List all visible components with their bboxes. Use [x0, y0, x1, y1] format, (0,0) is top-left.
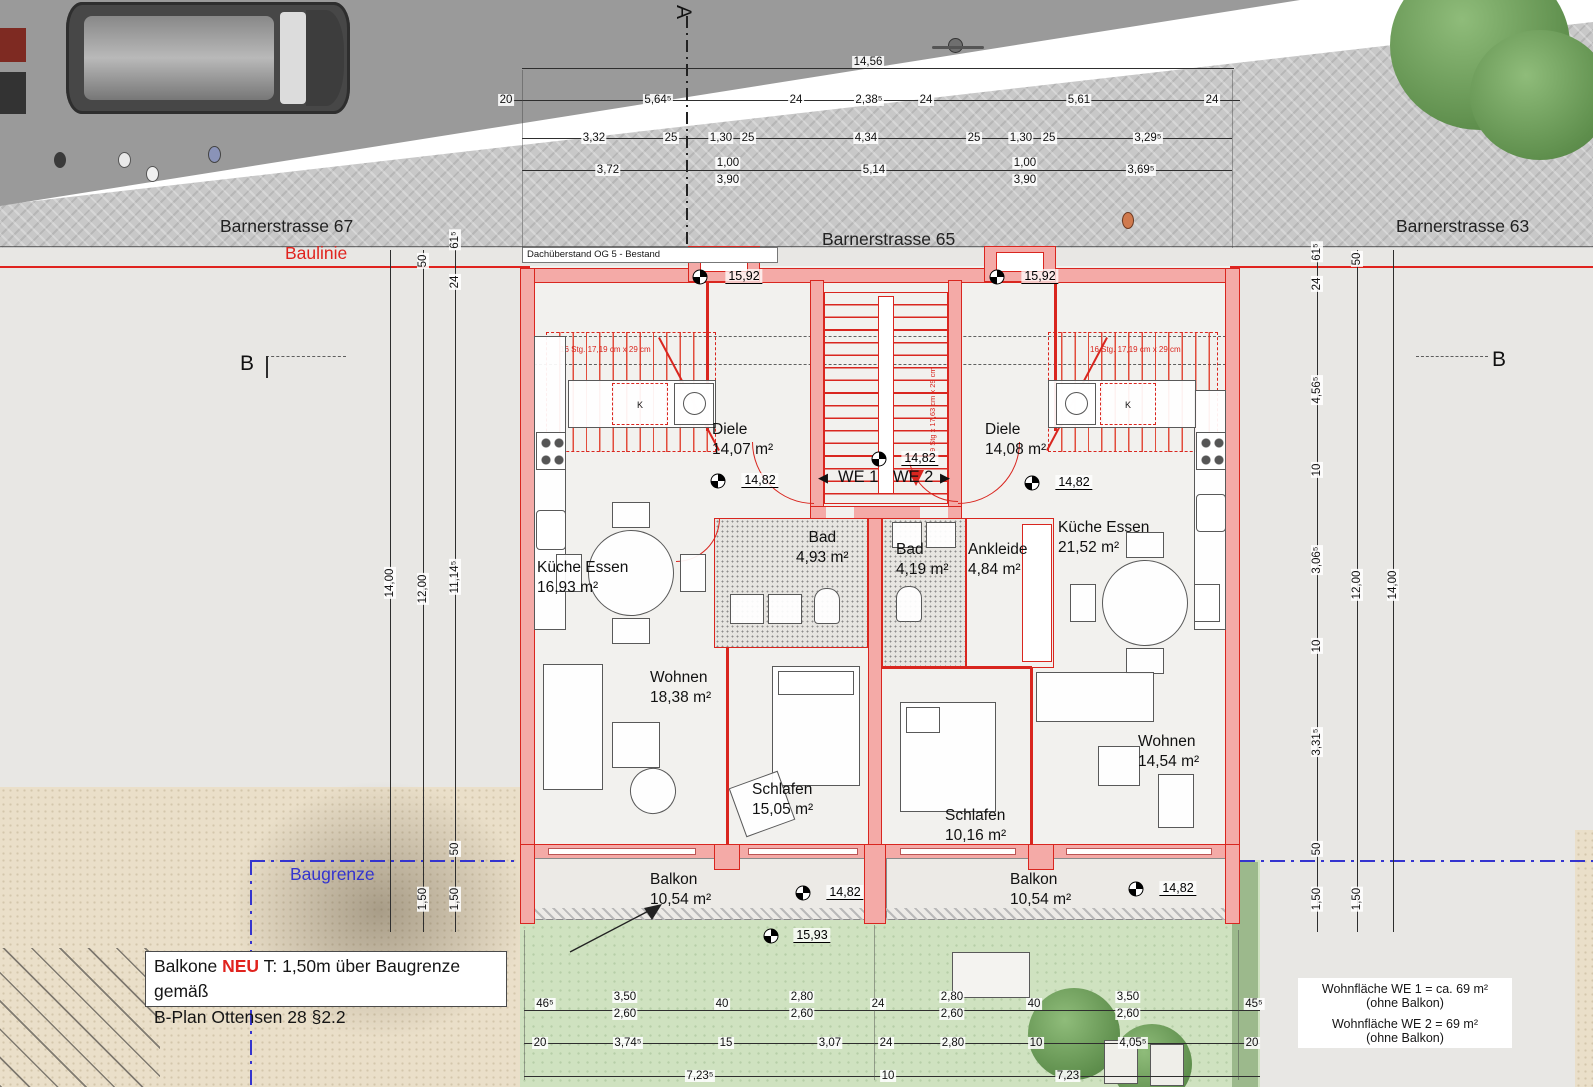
street-label-right: Barnerstrasse 63 [1396, 216, 1529, 237]
level-marker-diele1 [711, 474, 726, 489]
partition-we1-wohnen-schlafen [726, 648, 729, 844]
dim-label: 46⁵ [535, 998, 556, 1010]
legend-we2-sub: (ohne Balkon) [1298, 1031, 1512, 1045]
dim-label: 4,56⁵ [1311, 375, 1323, 405]
sink-left [536, 510, 566, 550]
roof-note-text: Dachüberstand OG 5 - Bestand [527, 249, 660, 260]
building-roof-fragment-2 [0, 72, 26, 114]
vanity-we1-a [730, 594, 764, 624]
note-line-1: Balkone NEU T: 1,50m über Baugrenze gemä… [154, 954, 498, 1005]
door-gap-we1 [826, 507, 854, 518]
section-b-left-label: B [240, 352, 254, 376]
sofa-we2 [1036, 672, 1154, 722]
dim-label: 7,23 [1055, 1070, 1080, 1082]
note-highlight: NEU [222, 956, 259, 976]
we1-label: WE 1 [838, 468, 878, 487]
bed-we1-pillows [778, 671, 854, 695]
dim-label: 3,32 [581, 132, 606, 144]
wall-top [520, 268, 1240, 283]
window-1 [548, 848, 696, 855]
dim-label: 24 [878, 1037, 894, 1049]
dim-label: 3,90 [1012, 174, 1037, 186]
dim-label: 1,50 [1351, 886, 1363, 911]
street-label-left: Barnerstrasse 67 [220, 216, 353, 237]
level-diele1: 14,82 [741, 473, 778, 488]
chair-we1-s [612, 618, 650, 644]
dim-label: 4,34 [853, 132, 878, 144]
dim-label: 24 [1311, 276, 1323, 292]
bicycle [932, 46, 984, 49]
street-boundary-line [0, 246, 1593, 247]
dim-label: 3,74⁵ [613, 1037, 643, 1049]
dim-label: 10 [880, 1070, 896, 1082]
stair-note-left: 16 Stg. 17,19 cm x 29 cm [560, 345, 651, 354]
stair-note-right: 16 Stg. 17,19 cm x 29 cm [1090, 345, 1181, 354]
street-label-center: Barnerstrasse 65 [822, 229, 955, 250]
ext-line [524, 930, 525, 1080]
chair-we1-n [612, 502, 650, 528]
dim-label: 20 [1244, 1037, 1260, 1049]
dim-label: 25 [966, 132, 982, 144]
window-4 [1066, 848, 1212, 855]
site-plan: Baulinie Barnerstrasse 67 Barnerstrasse … [0, 0, 1593, 1087]
chair-we1-e [680, 554, 706, 592]
car-hood [306, 10, 344, 106]
label-we2-schlafen: Schlafen10,16 m² [945, 806, 1006, 846]
wc-we1 [814, 588, 840, 624]
sofa-we1 [543, 664, 603, 790]
level-diele2: 14,82 [1055, 475, 1092, 490]
door-gap-we2 [920, 507, 948, 518]
balcony-end-right [1225, 844, 1240, 924]
label-we1-bad: Bad4,93 m² [796, 528, 849, 568]
dim-label: 24 [1204, 94, 1220, 106]
dim-label: 3,72 [595, 164, 620, 176]
chair-we2-s [1126, 648, 1164, 674]
level-marker-terrace [764, 929, 779, 944]
roof-note-box: Dachüberstand OG 5 - Bestand [522, 247, 778, 263]
legend-box: Wohnfläche WE 1 = ca. 69 m² (ohne Balkon… [1298, 978, 1512, 1048]
dim-label: 24 [788, 94, 804, 106]
sink-right [1196, 494, 1226, 532]
car-windshield [280, 12, 306, 104]
dim-label: 40 [1026, 998, 1042, 1010]
dim-label: 3,50 [1115, 991, 1140, 1003]
tv-bench-we2 [1158, 774, 1194, 828]
pillar-we2 [1028, 844, 1054, 870]
dim-label: 25 [1041, 132, 1057, 144]
washer-drum-right [1065, 392, 1088, 415]
level-balkon2: 14,82 [1159, 881, 1196, 896]
section-b-left-tick [266, 356, 268, 378]
baulinie-label: Baulinie [285, 243, 347, 264]
dim-label: 1,00 [1012, 157, 1037, 169]
ext-line [1232, 70, 1233, 248]
note-line-2: B-Plan Ottensen 28 §2.2 [154, 1005, 498, 1030]
bed-we2-pillows [906, 707, 940, 733]
dim-label: 3,69⁵ [1126, 164, 1156, 176]
label-we2-bad: Bad4,19 m² [896, 540, 949, 580]
dim-label: 24 [918, 94, 934, 106]
level-marker-roof-right [990, 270, 1005, 285]
dim-label: 14,00 [1387, 569, 1399, 601]
section-a-line [686, 16, 688, 252]
dim-label: 2,80 [940, 1037, 965, 1049]
dim-label: 12,00 [1351, 569, 1363, 601]
note-part1: Balkone [154, 956, 222, 976]
dim-label: 50 [449, 841, 461, 857]
dim-label: 61⁵ [449, 230, 461, 251]
dim-label: 1,50 [417, 886, 429, 911]
legend-we1: Wohnfläche WE 1 = ca. 69 m² [1298, 982, 1512, 996]
vanity-we1-b [768, 594, 802, 624]
dim-label: 24 [870, 998, 886, 1010]
wall-left [520, 268, 535, 858]
side-table-we2 [1098, 746, 1140, 786]
window-3 [900, 848, 1016, 855]
dim-label: 2,80 [789, 991, 814, 1003]
dim-label: 2,80 [939, 991, 964, 1003]
dim-label: 14,56 [852, 56, 884, 68]
partition-we2-schlafen-top [882, 666, 1032, 669]
label-we2-wohnen: Wohnen14,54 m² [1138, 732, 1199, 772]
window-2 [748, 848, 858, 855]
dim-label: 24 [449, 274, 461, 290]
dim-label: 45⁵ [1244, 998, 1265, 1010]
dim-label: 2,60 [789, 1008, 814, 1020]
chair-we2-w [1070, 584, 1096, 622]
dim-label: 50 [417, 253, 429, 269]
dim-label: 11,14⁵ [449, 559, 461, 595]
chair-we2-e [1194, 584, 1220, 622]
ext-line [1238, 930, 1239, 1080]
balcony-end-left [520, 844, 535, 924]
ext-line [522, 70, 523, 248]
balcony-divider [864, 844, 886, 924]
dim-label: 1,30 [708, 132, 733, 144]
partition-we2-schlafen-wohnen [1030, 668, 1033, 844]
dim-label: 4,05⁵ [1118, 1037, 1148, 1049]
stair-note-center: 9 Stg x 17,63 cm x 29 cm [928, 367, 937, 452]
dim-label: 5,14 [861, 164, 886, 176]
dim-label: 15 [718, 1037, 734, 1049]
label-we1-schlafen: Schlafen15,05 m² [752, 780, 813, 820]
level-marker-hall [872, 452, 887, 467]
dim-label: 10 [1028, 1037, 1044, 1049]
dim-label: 20 [498, 94, 514, 106]
dim-label: 1,30 [1008, 132, 1033, 144]
pedestrian-3 [146, 166, 159, 182]
dim-line-v [1317, 250, 1318, 932]
dim-label: 10 [1311, 462, 1323, 478]
coffee-table-we1 [612, 722, 660, 768]
baugrenze-label: Baugrenze [290, 864, 375, 885]
pillar-we1 [714, 844, 740, 870]
kitchen-k-box-right: K [1100, 383, 1156, 425]
hatch-area [0, 948, 160, 1087]
dim-label: 3,90 [715, 174, 740, 186]
stove-right [1196, 432, 1226, 470]
dim-label: 1,00 [715, 157, 740, 169]
dim-label: 2,60 [939, 1008, 964, 1020]
level-balkon1: 14,82 [826, 885, 863, 900]
section-b-right-label: B [1492, 348, 1506, 372]
pedestrian-1 [54, 152, 66, 168]
ground-right-edge [1575, 830, 1593, 1087]
we2-arrow: ▶ [940, 470, 950, 486]
kitchen-k-box-left: K [612, 383, 668, 425]
car-roof [84, 16, 274, 100]
dim-label: 25 [740, 132, 756, 144]
legend-we1-sub: (ohne Balkon) [1298, 996, 1512, 1010]
dim-label: 61⁵ [1311, 242, 1323, 263]
label-we1-diele: Diele14,07 m² [712, 420, 773, 460]
section-b-left-line [266, 356, 346, 357]
label-we1-wohnen: Wohnen18,38 m² [650, 668, 711, 708]
pedestrian-2 [118, 152, 131, 168]
wall-right [1225, 268, 1240, 858]
note-arrow [540, 890, 680, 960]
level-terrace: 15,93 [793, 928, 830, 943]
dim-label: 3,50 [612, 991, 637, 1003]
pedestrian-5 [1122, 212, 1134, 229]
wc-we2 [896, 586, 922, 622]
stove-left [536, 432, 566, 470]
level-hall: 14,82 [901, 451, 938, 466]
dim-label: 1,50 [449, 886, 461, 911]
garden-bench-2 [1150, 1044, 1184, 1086]
washer-drum-left [683, 392, 706, 415]
building-roof-fragment-1 [0, 28, 26, 62]
dim-line [522, 68, 1234, 69]
we1-arrow: ◀ [818, 470, 828, 486]
level-marker-diele2 [1025, 476, 1040, 491]
level-marker-balkon2 [1129, 882, 1144, 897]
dim-label: 25 [663, 132, 679, 144]
dim-label: 14,00 [384, 567, 396, 599]
dim-label: 40 [714, 998, 730, 1010]
dim-label: 2,60 [1115, 1008, 1140, 1020]
dim-label: 20 [532, 1037, 548, 1049]
dining-table-we2 [1102, 560, 1188, 646]
dim-label: 7,23⁵ [685, 1070, 715, 1082]
section-a-label: A [671, 5, 695, 19]
pedestrian-4 [208, 146, 221, 163]
dim-label: 10 [1311, 638, 1323, 654]
dim-label: 3,29⁵ [1133, 132, 1163, 144]
dim-label: 3,07 [817, 1037, 842, 1049]
legend-we2: Wohnfläche WE 2 = 69 m² [1298, 1017, 1512, 1031]
label-we1-kueche: Küche Essen16,93 m² [537, 558, 628, 598]
label-we2-diele: Diele14,08 m² [985, 420, 1046, 460]
dim-label: 2,60 [612, 1008, 637, 1020]
dim-label: 50 [1311, 841, 1323, 857]
label-we2-kueche: Küche Essen21,52 m² [1058, 518, 1149, 558]
level-marker-roof-left [693, 270, 708, 285]
dim-label: 1,50 [1311, 886, 1323, 911]
partition-center [868, 518, 882, 848]
dim-label: 3,06⁵ [1311, 545, 1323, 575]
dim-label: 3,31⁵ [1311, 727, 1323, 757]
dim-label: 50 [1351, 251, 1363, 267]
dim-label: 12,00 [417, 573, 429, 605]
level-roof-right: 15,92 [1021, 269, 1058, 284]
label-we2-ankleide: Ankleide4,84 m² [968, 540, 1027, 580]
dim-label: 5,61 [1066, 94, 1091, 106]
we2-label: WE 2 [893, 468, 933, 487]
note-box: Balkone NEU T: 1,50m über Baugrenze gemä… [145, 951, 507, 1007]
section-b-right-line [1416, 356, 1488, 357]
dim-label: 5,64⁵ [643, 94, 673, 106]
level-roof-left: 15,92 [725, 269, 762, 284]
level-marker-balkon1 [796, 886, 811, 901]
dim-label: 2,38⁵ [854, 94, 884, 106]
label-we2-balkon: Balkon10,54 m² [1010, 870, 1071, 910]
